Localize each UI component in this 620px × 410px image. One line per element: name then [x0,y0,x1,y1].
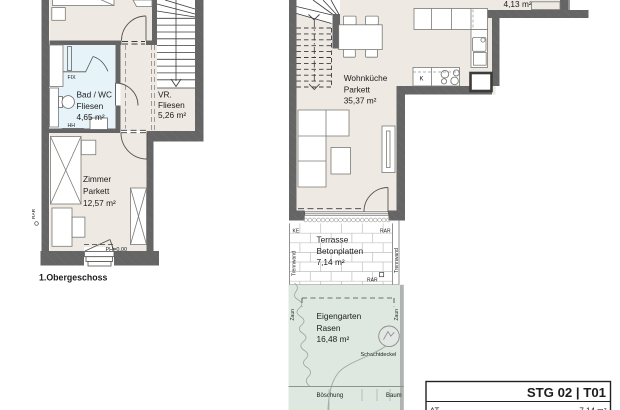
svg-text:Trennwand: Trennwand [292,251,298,276]
svg-text:Fliesen: Fliesen [158,100,185,110]
svg-text:PH=0,00: PH=0,00 [106,247,128,253]
svg-text:Baum: Baum [386,393,402,399]
svg-text:Fliesen: Fliesen [77,101,104,111]
svg-text:Zaun: Zaun [394,309,400,321]
svg-text:7,14 m²: 7,14 m² [317,257,345,267]
svg-text:STG 02 | T01: STG 02 | T01 [527,385,606,400]
svg-text:AT: AT [430,406,440,410]
svg-text:Terrasse: Terrasse [317,235,349,245]
svg-text:Rasen: Rasen [317,323,341,333]
svg-text:Parkett: Parkett [344,84,371,94]
svg-text:35,37 m²: 35,37 m² [344,95,377,105]
svg-text:4,13 m²: 4,13 m² [504,0,532,9]
svg-text:Zaun: Zaun [290,309,296,321]
svg-text:RAR: RAR [367,277,378,283]
svg-text:K: K [420,77,424,83]
svg-text:4,65 m²: 4,65 m² [77,112,105,122]
svg-text:FIX: FIX [68,75,77,81]
svg-text:Bad / WC: Bad / WC [77,90,113,100]
svg-text:RAR: RAR [380,228,391,234]
svg-text:Trennwand: Trennwand [394,248,400,273]
svg-text:16,48 m²: 16,48 m² [317,334,350,344]
svg-text:Eigengarten: Eigengarten [317,311,362,321]
svg-text:12,57 m²: 12,57 m² [83,198,116,208]
svg-text:KE: KE [293,228,300,234]
svg-text:Betonplatten: Betonplatten [317,246,364,256]
svg-text:HH: HH [68,123,76,129]
svg-text:7,14 m²: 7,14 m² [579,406,606,410]
svg-text:VR.: VR. [158,90,172,100]
svg-text:1.Obergeschoss: 1.Obergeschoss [39,272,108,282]
svg-text:Wohnküche: Wohnküche [344,73,388,83]
svg-text:RAR: RAR [31,208,37,219]
svg-text:5,26 m²: 5,26 m² [158,110,186,120]
svg-text:Böschung: Böschung [317,393,344,399]
svg-text:Zimmer: Zimmer [83,174,111,184]
svg-text:Parkett: Parkett [83,186,110,196]
